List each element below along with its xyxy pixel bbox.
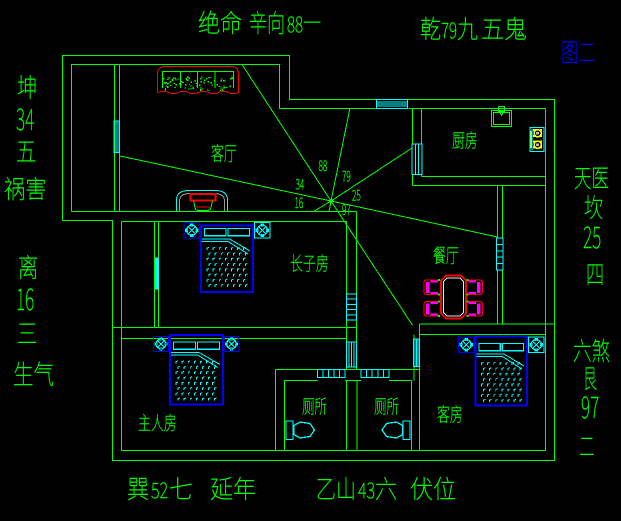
- svg-text:97: 97: [342, 199, 351, 220]
- svg-text:绝命: 绝命: [198, 3, 242, 39]
- svg-text:52: 52: [151, 475, 168, 505]
- svg-text:三: 三: [17, 313, 37, 351]
- svg-text:四: 四: [586, 255, 604, 292]
- svg-text:图二: 图二: [561, 32, 595, 70]
- svg-text:二: 二: [579, 427, 595, 465]
- svg-text:伏位: 伏位: [410, 469, 456, 505]
- svg-text:25: 25: [583, 215, 601, 258]
- svg-text:五鬼: 五鬼: [481, 9, 527, 45]
- svg-text:客厅: 客厅: [211, 138, 237, 166]
- svg-text:五: 五: [16, 131, 36, 169]
- svg-text:一: 一: [303, 4, 321, 40]
- svg-text:生气: 生气: [13, 352, 54, 391]
- svg-text:厕所: 厕所: [374, 391, 399, 419]
- svg-text:25: 25: [352, 184, 361, 205]
- svg-text:六: 六: [375, 469, 397, 505]
- svg-text:厕所: 厕所: [302, 391, 327, 419]
- svg-text:88: 88: [319, 155, 328, 176]
- svg-text:餐厅: 餐厅: [433, 240, 459, 268]
- svg-text:九: 九: [457, 9, 478, 46]
- svg-text:辛向: 辛向: [249, 4, 285, 40]
- svg-text:长子房: 长子房: [290, 248, 329, 276]
- svg-text:客房: 客房: [437, 399, 463, 427]
- svg-text:79: 79: [441, 15, 457, 45]
- svg-text:79: 79: [342, 165, 351, 186]
- svg-text:97: 97: [581, 385, 599, 428]
- svg-text:16: 16: [295, 192, 304, 213]
- svg-text:主人房: 主人房: [138, 407, 177, 435]
- svg-text:巽: 巽: [127, 469, 149, 505]
- svg-text:乾: 乾: [420, 9, 441, 46]
- svg-text:祸害: 祸害: [4, 169, 46, 206]
- svg-text:七: 七: [169, 470, 193, 506]
- svg-text:88: 88: [287, 9, 303, 39]
- svg-text:乙山: 乙山: [316, 469, 356, 505]
- svg-text:43: 43: [358, 475, 375, 505]
- svg-text:延年: 延年: [210, 469, 256, 505]
- svg-text:厨房: 厨房: [452, 125, 478, 153]
